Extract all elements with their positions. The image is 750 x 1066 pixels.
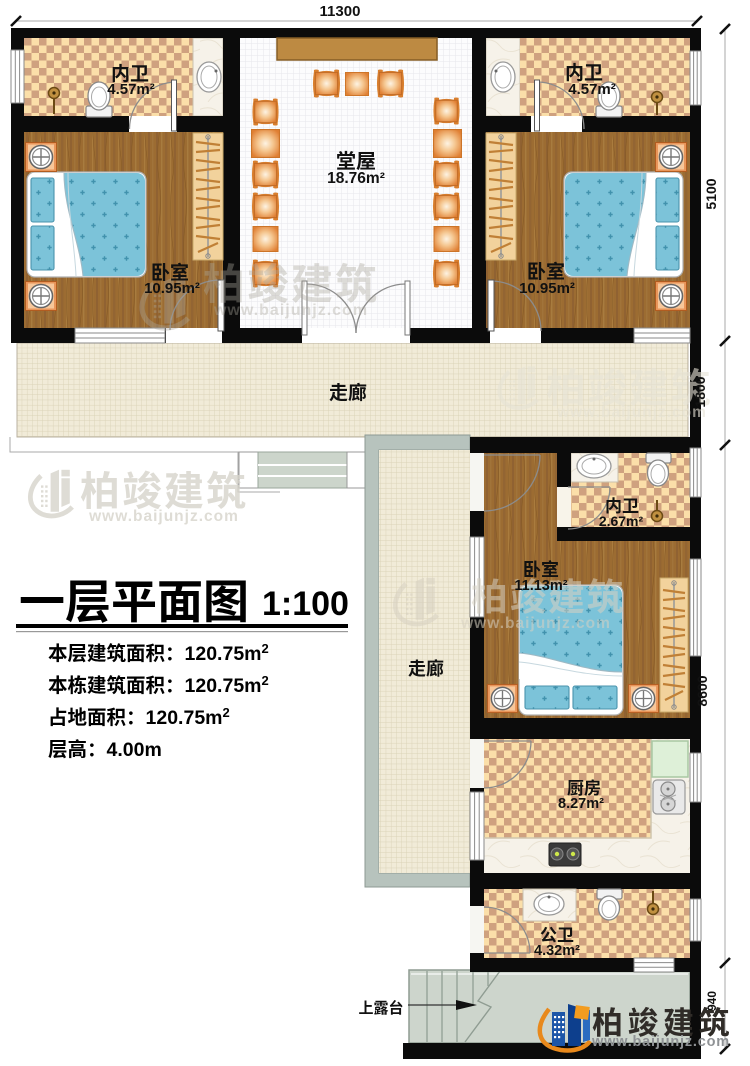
svg-text:11.13m²: 11.13m² (514, 578, 567, 594)
svg-text:www.baijunjz.com: www.baijunjz.com (213, 302, 368, 319)
svg-text:4.57m²: 4.57m² (107, 81, 155, 98)
svg-text:1800: 1800 (692, 376, 708, 407)
svg-text:上露台: 上露台 (358, 997, 403, 1018)
svg-text:10.95m²: 10.95m² (144, 280, 200, 297)
svg-text:8.27m²: 8.27m² (558, 796, 604, 812)
svg-text:走廊: 走廊 (329, 378, 367, 405)
svg-text:www.baijunjz.com: www.baijunjz.com (556, 404, 707, 421)
svg-text:11300: 11300 (320, 3, 361, 20)
svg-text:10.95m²: 10.95m² (519, 280, 575, 297)
svg-text:www.baijunjz.com: www.baijunjz.com (460, 615, 611, 632)
svg-text:5100: 5100 (703, 178, 719, 209)
svg-text:www.baijunjz.com: www.baijunjz.com (88, 508, 239, 525)
svg-text:www.baijunjz.com: www.baijunjz.com (591, 1034, 730, 1050)
svg-text:走廊: 走廊 (408, 655, 444, 681)
svg-text:一层平面图: 一层平面图 (19, 566, 249, 632)
svg-text:18.76m²: 18.76m² (327, 170, 385, 187)
svg-text:1:100: 1:100 (262, 585, 349, 623)
svg-text:4.32m²: 4.32m² (534, 943, 580, 959)
svg-text:4.57m²: 4.57m² (568, 81, 616, 98)
svg-text:2.67m²: 2.67m² (599, 513, 644, 529)
svg-text:8600: 8600 (694, 675, 710, 706)
